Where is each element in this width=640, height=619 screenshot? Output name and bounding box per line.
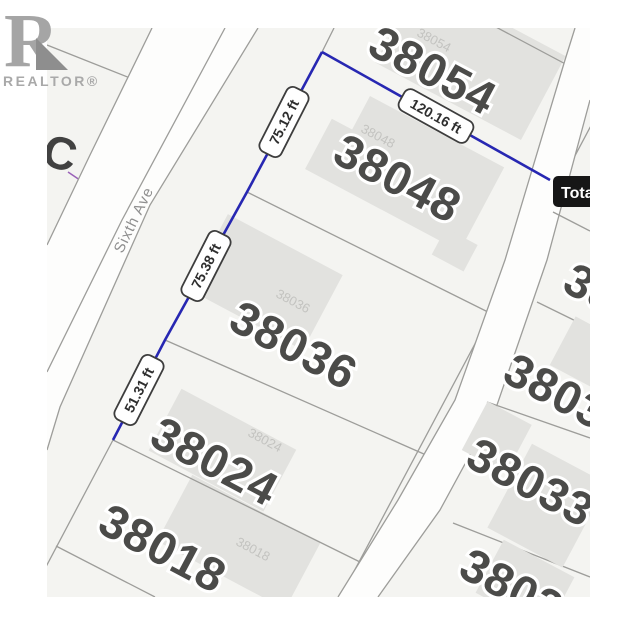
map-canvas[interactable]: 38054 38048 38036 38024 38018 38054 3804… xyxy=(0,0,640,619)
realtor-logo-glyph: R xyxy=(4,0,60,83)
tooltip-text: Tota xyxy=(561,185,594,202)
map-page: 38054 38048 38036 38024 38018 38054 3804… xyxy=(0,0,640,619)
realtor-logo-wordmark: REALTOR® xyxy=(3,73,100,89)
tooltip-total: Tota xyxy=(553,176,623,207)
